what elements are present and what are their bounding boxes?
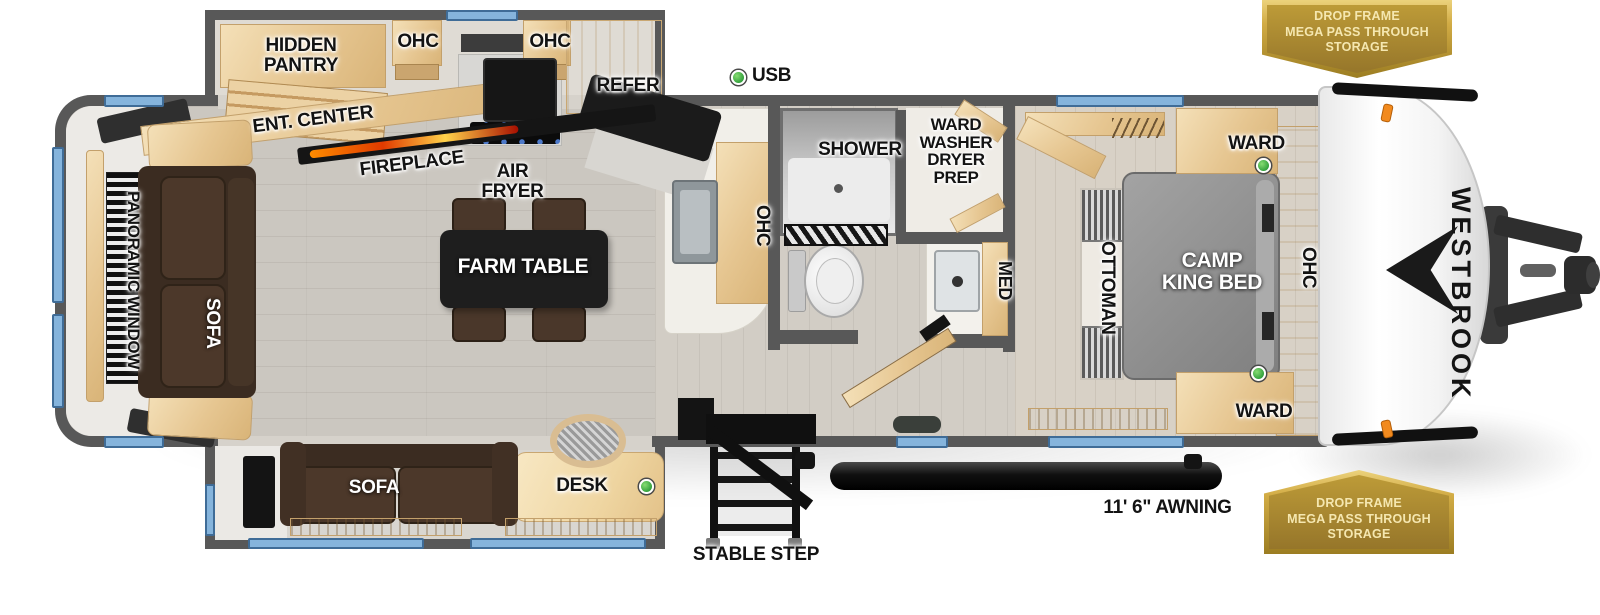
- label-ohc: OHC: [388, 32, 448, 52]
- window: [104, 95, 164, 107]
- bedroom-shelf-bottom: [1028, 408, 1168, 430]
- window: [205, 484, 215, 536]
- entry-mat: [893, 416, 941, 433]
- toilet-seat: [816, 258, 854, 304]
- rear-sofa-cushion: [160, 176, 226, 280]
- label-usb: USB: [752, 66, 812, 86]
- badge-line: STORAGE: [1328, 527, 1391, 541]
- window: [248, 538, 424, 549]
- usb-led-indicator: [1251, 366, 1266, 381]
- label-air-fryer: AIR FRYER: [470, 162, 555, 202]
- label-med: MED: [988, 250, 1014, 312]
- kitchen-sink-basin: [680, 190, 710, 254]
- label-farm-table: FARM TABLE: [448, 256, 598, 278]
- label-sofa: SOFA: [194, 288, 222, 358]
- label-panoramic-window: PANORAMIC WINDOW: [112, 175, 142, 385]
- bath-wall: [896, 110, 906, 238]
- label-refer: REFER: [588, 76, 668, 96]
- awning-bracket: [795, 452, 815, 469]
- label-camp-king-bed: CAMP KING BED: [1142, 250, 1282, 294]
- badge-line: MEGA PASS THROUGH: [1285, 25, 1429, 39]
- label-desk: DESK: [546, 476, 618, 496]
- storage-badge-top: DROP FRAME MEGA PASS THROUGH STORAGE: [1262, 0, 1452, 78]
- tongue-jack: [1520, 264, 1556, 277]
- label-ottoman: OTTOMAN: [1087, 228, 1117, 348]
- badge-line: DROP FRAME: [1316, 496, 1402, 510]
- bed-hinge: [1262, 312, 1274, 340]
- label-shower: SHOWER: [810, 140, 910, 160]
- slideout-sofa-back: [284, 444, 514, 468]
- bed-hinge: [1262, 204, 1274, 232]
- label-ward-washer-dryer-prep: WARD WASHER DRYER PREP: [914, 116, 998, 187]
- dining-chair: [452, 198, 506, 234]
- usb-led-indicator: [731, 70, 746, 85]
- label-hidden-pantry: HIDDEN PANTRY: [236, 36, 366, 76]
- label-awning-length: 11' 6" AWNING: [1085, 498, 1250, 518]
- label-ohc: OHC: [744, 196, 772, 256]
- clothes-hangers: [1112, 118, 1164, 138]
- bath-wall: [768, 330, 858, 344]
- dining-chair: [452, 306, 506, 342]
- awning: [830, 462, 1222, 490]
- badge-line: MEGA PASS THROUGH: [1287, 512, 1431, 526]
- window: [446, 10, 518, 21]
- usb-led-indicator: [1256, 158, 1271, 173]
- window-sill: [290, 518, 462, 536]
- label-ohc: OHC: [1290, 238, 1318, 298]
- storage-badge-text: DROP FRAME MEGA PASS THROUGH STORAGE: [1262, 9, 1452, 56]
- window: [52, 147, 64, 303]
- stable-step-rail: [710, 447, 718, 539]
- storage-badge-text: DROP FRAME MEGA PASS THROUGH STORAGE: [1264, 496, 1454, 543]
- label-stable-step: STABLE STEP: [676, 545, 836, 565]
- label-sofa: SOFA: [338, 478, 410, 498]
- dining-chair: [532, 198, 586, 234]
- rear-sofa-footrest: [228, 178, 254, 386]
- window: [52, 314, 64, 408]
- brand-name: WESTBROOK: [1440, 166, 1476, 422]
- awning-bracket: [1184, 454, 1202, 469]
- overhead-cabinet-left-lower: [395, 64, 439, 80]
- slideout-sofa-cushion: [398, 466, 504, 524]
- shower-glass-door: [784, 224, 888, 246]
- rv-floorplan: WESTBROOK HIDDEN PANTRY OHC OHC REFER US…: [0, 0, 1600, 615]
- slideout-sofa-arm: [492, 442, 518, 526]
- bath-faucet: [952, 276, 963, 287]
- window: [1048, 436, 1184, 448]
- window: [104, 436, 164, 448]
- dining-chair: [532, 306, 586, 342]
- label-ward: WARD: [1214, 134, 1299, 154]
- label-ward: WARD: [1220, 402, 1308, 422]
- usb-led-indicator: [639, 479, 654, 494]
- badge-line: DROP FRAME: [1314, 9, 1400, 23]
- shower-drain: [834, 184, 843, 193]
- window-sill: [505, 518, 657, 536]
- range-oven: [483, 58, 557, 122]
- hitch-coupler-ball: [1586, 262, 1600, 288]
- tv-panel: [243, 456, 275, 528]
- desk-chair: [550, 414, 626, 468]
- window: [896, 436, 948, 448]
- label-ohc: OHC: [520, 32, 580, 52]
- vent-hood: [461, 34, 525, 52]
- badge-line: STORAGE: [1326, 40, 1389, 54]
- panoramic-window-frame: [86, 150, 104, 402]
- window: [470, 538, 646, 549]
- window: [1056, 95, 1184, 107]
- slideout-sofa-arm: [280, 442, 306, 526]
- kitchen-sink: [672, 180, 718, 264]
